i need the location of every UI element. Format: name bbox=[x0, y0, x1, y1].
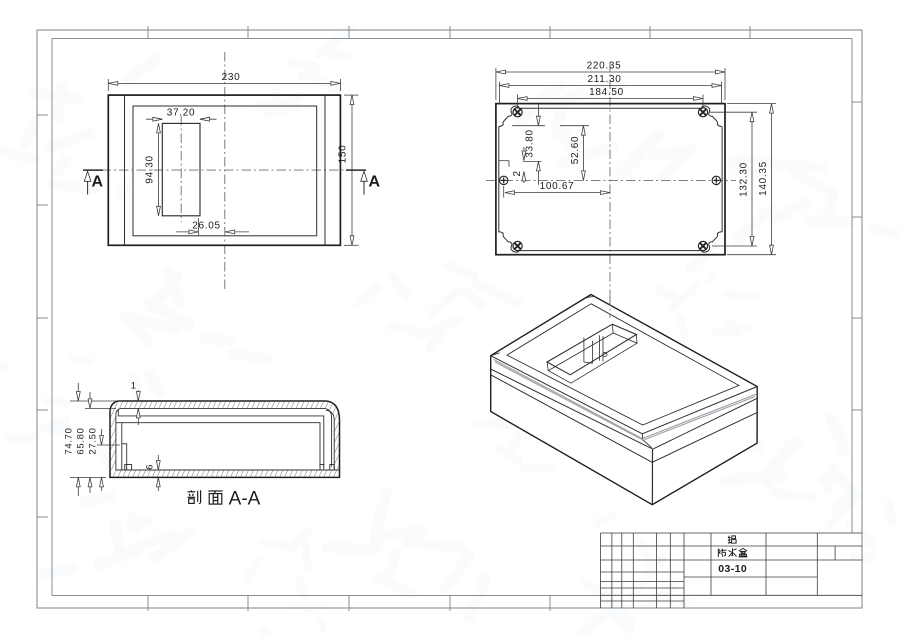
svg-text:184.50: 184.50 bbox=[589, 87, 624, 98]
svg-text:37.20: 37.20 bbox=[167, 108, 196, 119]
svg-text:94.30: 94.30 bbox=[145, 155, 156, 184]
svg-text:220.35: 220.35 bbox=[587, 61, 622, 72]
svg-text:150: 150 bbox=[338, 145, 349, 164]
svg-text:230: 230 bbox=[222, 72, 241, 83]
svg-text:A-A: A-A bbox=[229, 489, 261, 510]
svg-text:100.67: 100.67 bbox=[540, 181, 575, 192]
svg-text:A: A bbox=[369, 174, 381, 191]
svg-text:6: 6 bbox=[145, 464, 156, 470]
svg-text:74.70: 74.70 bbox=[64, 427, 75, 454]
svg-text:1: 1 bbox=[131, 380, 137, 391]
svg-text:A: A bbox=[92, 174, 104, 191]
svg-text:211.30: 211.30 bbox=[587, 74, 621, 85]
svg-text:52.60: 52.60 bbox=[570, 136, 581, 165]
svg-text:26.05: 26.05 bbox=[192, 220, 221, 231]
svg-text:140.35: 140.35 bbox=[758, 161, 769, 196]
svg-text:03-10: 03-10 bbox=[718, 563, 747, 575]
svg-text:2: 2 bbox=[512, 170, 523, 176]
svg-text:65.80: 65.80 bbox=[76, 427, 87, 454]
svg-text:132.30: 132.30 bbox=[738, 162, 749, 197]
svg-text:33.80: 33.80 bbox=[524, 129, 535, 158]
svg-text:27.50: 27.50 bbox=[88, 427, 99, 454]
